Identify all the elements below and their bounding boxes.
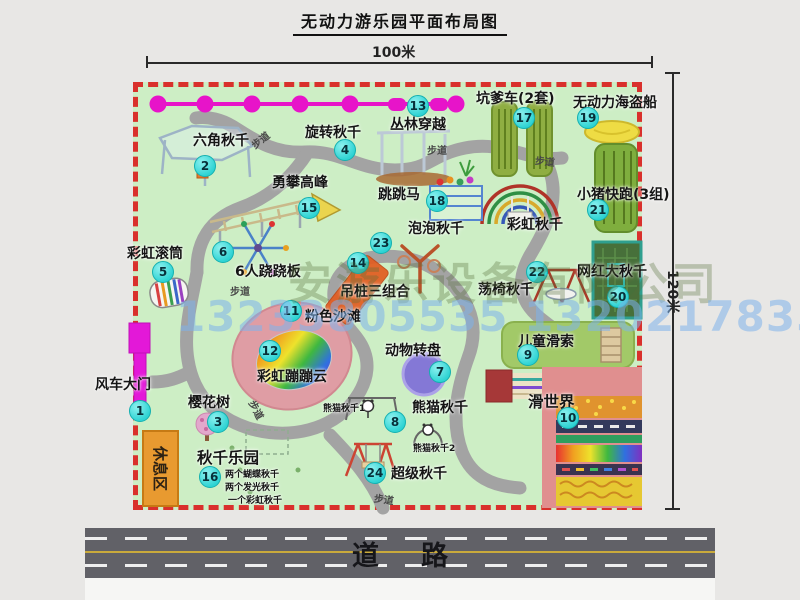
page-title: 无动力游乐园平面布局图 — [293, 8, 507, 36]
playground-plan-page: 无动力游乐园平面布局图 100米 120米 — [0, 0, 800, 600]
label-jungle-crossing: 丛林穿越 — [390, 114, 446, 134]
width-dim-tick-right — [651, 56, 653, 68]
label-pit-cart: 坑爹车(2套) — [476, 88, 555, 108]
marker-panda-swing: 8 — [384, 411, 406, 433]
marker-jumping-horse: 18 — [426, 190, 448, 212]
label-hexagon-swing: 六角秋千 — [193, 130, 249, 150]
marker-kids-zipline: 9 — [517, 344, 539, 366]
label-super-swing: 超级秋千 — [391, 463, 447, 483]
walkway-label: 步道 — [230, 283, 250, 298]
marker-bubble-swing: 23 — [370, 232, 392, 254]
marker-swing-chair: 22 — [526, 261, 548, 283]
road-lower-margin — [85, 578, 715, 600]
marker-animal-carousel: 7 — [429, 361, 451, 383]
walkway-label: 步道 — [427, 142, 447, 157]
marker-slide-world: 10 — [557, 407, 579, 429]
marker-super-swing: 24 — [364, 462, 386, 484]
label-big-net-swing: 网红大秋千 — [577, 261, 647, 281]
width-dimension-line — [147, 62, 652, 64]
label-rainbow-roller: 彩虹滚筒 — [127, 243, 183, 263]
marker-six-person-seesaw: 6 — [212, 241, 234, 263]
label-windmill-gate: 风车大门 — [95, 374, 151, 394]
label-six-person-seesaw: 6人跷跷板 — [235, 261, 301, 281]
marker-climbing-peak: 15 — [298, 197, 320, 219]
label-rainbow-bounce-cloud: 彩虹蹦蹦云 — [257, 366, 327, 386]
road-band: 道路 — [85, 528, 715, 578]
marker-swing-park: 16 — [199, 466, 221, 488]
walkway-label: 步道 — [373, 490, 395, 508]
rest-area-box: 休息区 — [142, 430, 179, 507]
road-label: 道路 — [310, 534, 490, 573]
marker-piggy-run: 21 — [587, 199, 609, 221]
label-rainbow-arch-swing: 彩虹秋千 — [507, 214, 563, 234]
label-swing-park-note-2: 两个发光秋千 — [225, 480, 279, 493]
marker-rainbow-bounce-cloud: 12 — [259, 340, 281, 362]
label-swing-park-note-3: 一个彩虹秋千 — [228, 493, 282, 506]
walkway-label: 步道 — [534, 152, 555, 169]
label-cherry-tree: 樱花树 — [188, 392, 230, 412]
width-dim-tick-left — [146, 56, 148, 68]
label-pink-beach: 粉色沙滩 — [305, 306, 361, 326]
height-dimension-label: 120米 — [663, 270, 683, 313]
marker-hanging-post-combo: 14 — [347, 252, 369, 274]
marker-rainbow-roller: 5 — [152, 261, 174, 283]
marker-big-net-swing: 20 — [607, 286, 629, 308]
label-swing-chair: 荡椅秋千 — [478, 279, 534, 299]
label-panda-swing-2: 熊猫秋千2 — [413, 441, 455, 454]
rest-area-label: 休息区 — [150, 446, 171, 491]
height-dim-tick-bottom — [665, 508, 680, 510]
marker-rotating-swing: 4 — [334, 139, 356, 161]
label-jumping-horse: 跳跳马 — [378, 184, 420, 204]
marker-windmill-gate: 1 — [129, 400, 151, 422]
label-swing-park-note-1: 两个蝴蝶秋千 — [225, 467, 279, 480]
label-panda-swing: 熊猫秋千 — [412, 397, 468, 417]
marker-cherry-tree: 3 — [207, 411, 229, 433]
label-climbing-peak: 勇攀高峰 — [272, 172, 328, 192]
marker-jungle-crossing: 13 — [407, 95, 429, 117]
marker-pink-beach: 11 — [280, 300, 302, 322]
label-animal-carousel: 动物转盘 — [385, 340, 441, 360]
label-swing-park: 秋千乐园 — [197, 446, 259, 468]
marker-pirate-ship: 19 — [577, 107, 599, 129]
label-bubble-swing: 泡泡秋千 — [408, 218, 464, 238]
marker-hexagon-swing: 2 — [194, 155, 216, 177]
label-hanging-post-combo: 吊桩三组合 — [340, 281, 410, 301]
height-dim-tick-top — [665, 72, 680, 74]
width-dimension-label: 100米 — [372, 42, 415, 62]
marker-pit-cart: 17 — [513, 107, 535, 129]
label-rotating-swing: 旋转秋千 — [305, 122, 361, 142]
label-panda-swing-1: 熊猫秋千1 — [323, 401, 365, 414]
